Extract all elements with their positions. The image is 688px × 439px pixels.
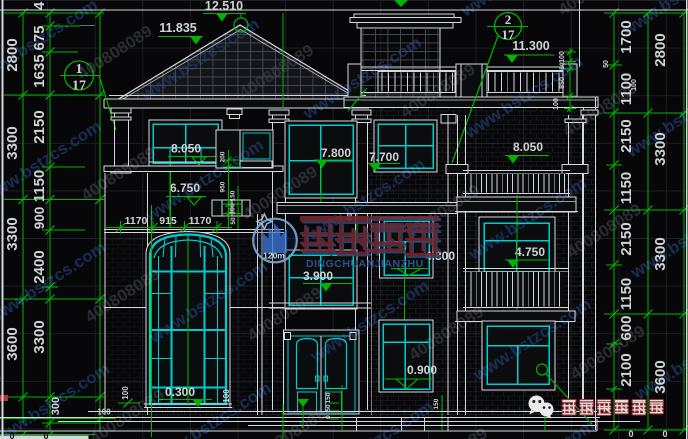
- svg-text:7.700: 7.700: [369, 150, 399, 164]
- svg-text:150: 150: [325, 392, 332, 403]
- svg-text:2150: 2150: [31, 110, 48, 143]
- svg-text:4.750: 4.750: [515, 245, 545, 259]
- svg-text:DINGCHUANJIANZHU: DINGCHUANJIANZHU: [306, 258, 424, 270]
- svg-text:1170: 1170: [125, 215, 148, 227]
- svg-text:3600: 3600: [4, 327, 21, 360]
- svg-text:900: 900: [32, 207, 47, 230]
- svg-text:8.050: 8.050: [513, 140, 543, 154]
- svg-text:0: 0: [628, 429, 633, 439]
- svg-text:1150: 1150: [618, 172, 635, 205]
- svg-text:120m: 120m: [263, 251, 285, 261]
- svg-text:950: 950: [220, 181, 227, 192]
- svg-text:150: 150: [230, 190, 237, 201]
- svg-text:4: 4: [31, 1, 48, 10]
- svg-text:17: 17: [502, 27, 516, 42]
- svg-text:8.050: 8.050: [171, 142, 201, 156]
- svg-text:50: 50: [230, 217, 237, 225]
- svg-text:1635: 1635: [31, 54, 48, 87]
- svg-text:0: 0: [43, 431, 48, 439]
- svg-text:0: 0: [662, 429, 667, 439]
- svg-text:2: 2: [505, 12, 512, 27]
- svg-text:7.800: 7.800: [321, 146, 351, 160]
- svg-text:50: 50: [603, 60, 610, 68]
- svg-text:1170: 1170: [189, 215, 212, 227]
- svg-text:3.900: 3.900: [303, 269, 333, 283]
- svg-text:11.300: 11.300: [512, 39, 550, 53]
- svg-text:1150: 1150: [618, 278, 635, 311]
- svg-text:0.900: 0.900: [407, 363, 437, 377]
- svg-text:11.835: 11.835: [159, 21, 197, 35]
- svg-text:3300: 3300: [4, 126, 21, 159]
- svg-text:2800: 2800: [652, 33, 669, 66]
- svg-text:150: 150: [433, 398, 440, 409]
- svg-text:2100: 2100: [618, 353, 635, 386]
- svg-text:3300: 3300: [4, 217, 21, 250]
- svg-text:12.510: 12.510: [205, 0, 243, 13]
- svg-text:100: 100: [230, 203, 237, 215]
- svg-text:3300: 3300: [31, 320, 48, 353]
- svg-text:0.300: 0.300: [165, 385, 195, 399]
